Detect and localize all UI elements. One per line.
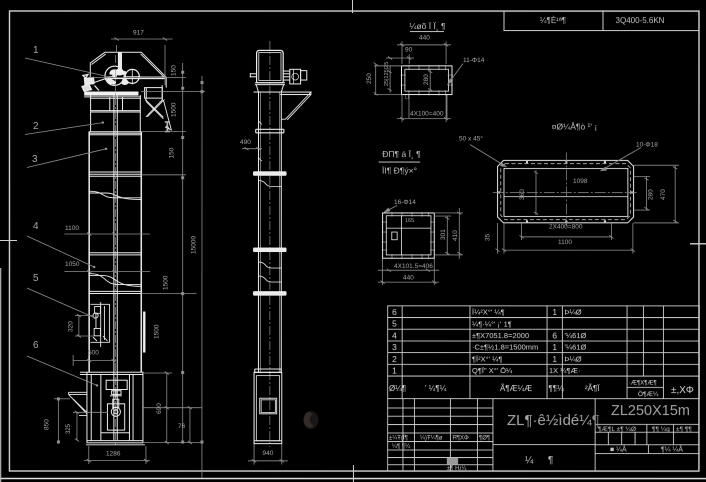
svg-text:ZL250X15m: ZL250X15m	[611, 403, 690, 419]
svg-text:¼¶·¼°' ¡' 1¶: ¼¶·¼°' ¡' 1¶	[472, 319, 512, 328]
svg-text:·C±¶½1.8=1500mm: ·C±¶½1.8=1500mm	[472, 343, 538, 352]
svg-text:'¼61Ø: '¼61Ø	[564, 343, 586, 352]
svg-text:4X101.5=406: 4X101.5=406	[394, 263, 433, 270]
svg-text:¶Æ¶L ±¶ ¼Ø: ¶Æ¶L ±¶ ¼Ø	[598, 426, 636, 433]
svg-text:Ã¶Æ¼Æ: Ã¶Æ¼Æ	[500, 384, 532, 393]
svg-text:1286: 1286	[106, 451, 121, 458]
svg-text:' ¼¶¼: ' ¼¶¼	[425, 384, 447, 393]
svg-text:6: 6	[552, 330, 557, 340]
svg-text:410: 410	[452, 230, 459, 241]
svg-text:490: 490	[240, 139, 251, 146]
svg-text:Q¶Ï" X°' Ō¼: Q¶Ï" X°' Ō¼	[472, 366, 513, 375]
svg-text:690: 690	[156, 403, 163, 414]
svg-text:1: 1	[392, 366, 397, 376]
svg-text:2X400=800: 2X400=800	[549, 224, 583, 231]
svg-text:5: 5	[33, 273, 39, 284]
svg-text:35: 35	[484, 233, 491, 241]
svg-text:±,XΦ: ±,XΦ	[671, 385, 694, 396]
svg-text:1: 1	[552, 342, 557, 352]
svg-text:1: 1	[552, 354, 557, 364]
svg-text:1098: 1098	[573, 178, 588, 185]
svg-text:76: 76	[178, 423, 186, 430]
svg-text:3: 3	[32, 154, 38, 165]
svg-text:4X100=400: 4X100=400	[410, 111, 444, 118]
svg-text:150: 150	[170, 65, 177, 76]
svg-text:1500: 1500	[170, 102, 177, 117]
svg-text:360: 360	[519, 189, 526, 200]
svg-text:440: 440	[419, 35, 430, 42]
svg-text:■ ¼Å: ■ ¼Å	[610, 445, 627, 454]
svg-text:Þ¼Ø: Þ¼Ø	[564, 354, 581, 363]
svg-text:4: 4	[392, 330, 397, 340]
svg-text:280: 280	[647, 189, 654, 200]
svg-text:¤Ø¼Å¶ò ¹' ¡: ¤Ø¼Å¶ò ¹' ¡	[552, 122, 597, 132]
svg-text:¶Ø¶: ¶Ø¶	[479, 436, 490, 442]
svg-text:¼øõ Ï Ï¸ ¶: ¼øõ Ï Ï¸ ¶	[409, 21, 446, 31]
svg-text:1500: 1500	[153, 324, 160, 339]
svg-text:90: 90	[405, 47, 413, 54]
svg-text:¼¶È¹ª¶: ¼¶È¹ª¶	[540, 16, 566, 25]
svg-text:¶Ï²X°' ¼¶: ¶Ï²X°' ¼¶	[472, 354, 502, 363]
svg-text:6: 6	[33, 340, 39, 351]
svg-text:Ø¼¶: Ø¼¶	[389, 384, 406, 393]
svg-text:±¼Ŧ(Ï¶: ±¼Ŧ(Ï¶	[389, 435, 408, 442]
svg-text:850: 850	[43, 419, 50, 430]
svg-text:917: 917	[133, 30, 144, 37]
svg-text:1500: 1500	[162, 275, 169, 290]
svg-text:325: 325	[66, 423, 72, 434]
svg-text:1: 1	[552, 307, 557, 317]
svg-text:11-Φ14: 11-Φ14	[463, 57, 485, 64]
svg-text:ÏI¶ Ð¶ý×°: ÏI¶ Ð¶ý×°	[382, 166, 417, 176]
svg-text:ÐΠ¶ á Ï¸ ¶: ÐΠ¶ á Ï¸ ¶	[382, 149, 421, 159]
svg-text:¼)Ŧ¼¶ø: ¼)Ŧ¼¶ø	[420, 436, 443, 442]
svg-text:Ħ¶XΦ: Ħ¶XΦ	[452, 436, 469, 442]
svg-text:25|125|25: 25|125|25	[384, 62, 390, 86]
svg-text:3Q400-5.6KN: 3Q400-5.6KN	[616, 16, 665, 25]
svg-text:150: 150	[168, 147, 175, 158]
svg-text:Ï¼²X°' ¼¶: Ï¼²X°' ¼¶	[472, 308, 505, 317]
svg-text:1100: 1100	[558, 239, 572, 246]
svg-text:1050: 1050	[65, 261, 80, 268]
svg-text:'¼61Ø: '¼61Ø	[564, 331, 586, 340]
svg-text:1100: 1100	[65, 225, 79, 232]
svg-text:¶: ¶	[548, 455, 553, 466]
svg-text:²Ã¶Ï: ²Ã¶Ï	[585, 384, 600, 393]
svg-text:940: 940	[262, 450, 273, 457]
svg-text:2: 2	[33, 121, 39, 132]
svg-text:±¶X7051.8=2000: ±¶X7051.8=2000	[472, 331, 529, 340]
svg-text:5: 5	[392, 319, 397, 329]
svg-text:LI: LI	[405, 95, 409, 101]
svg-text:320: 320	[67, 321, 74, 332]
svg-text:301: 301	[440, 229, 447, 240]
svg-text:1: 1	[33, 45, 39, 56]
svg-text:¶¼ ¼Å: ¶¼ ¼Å	[661, 445, 683, 454]
svg-text:500: 500	[88, 350, 99, 357]
svg-text:10-Φ18: 10-Φ18	[636, 142, 658, 149]
svg-text:Þ¼Ø: Þ¼Ø	[564, 308, 581, 317]
svg-text:3: 3	[392, 342, 397, 352]
svg-text:¼¶ ¶¼: ¼¶ ¶¼	[392, 444, 411, 450]
svg-text:165: 165	[405, 218, 414, 224]
svg-text:¶¶¼: ¶¶¼	[548, 384, 564, 393]
svg-text:2: 2	[392, 354, 397, 364]
svg-text:4: 4	[33, 221, 39, 232]
svg-text:280: 280	[423, 74, 430, 85]
svg-text:50 x 45°: 50 x 45°	[459, 135, 483, 143]
svg-text:1X ¼¶Æ·: 1X ¼¶Æ·	[549, 366, 581, 375]
svg-text:±¶ ¶¶: ±¶ ¶¶	[676, 426, 692, 433]
svg-text:¶¶ ¼g: ¶¶ ¼g	[652, 426, 670, 433]
svg-text:·Æ¶X¶Æ¶: ·Æ¶X¶Æ¶	[629, 381, 657, 387]
svg-text:±¶ Ƕ¼: ±¶ Ƕ¼	[447, 466, 467, 472]
svg-text:15000: 15000	[190, 236, 197, 254]
svg-text:440: 440	[403, 275, 414, 282]
svg-text:16-Φ14: 16-Φ14	[394, 199, 416, 206]
svg-text:¼: ¼	[525, 454, 534, 466]
svg-text:ZL¶·ê½ìdé¼¶: ZL¶·ê½ìdé¼¶	[507, 412, 600, 429]
svg-text:Ö¶Æ¼: Ö¶Æ¼	[638, 390, 659, 398]
svg-text:470: 470	[660, 189, 667, 200]
svg-text:250: 250	[366, 73, 373, 84]
svg-text:6: 6	[392, 307, 397, 317]
